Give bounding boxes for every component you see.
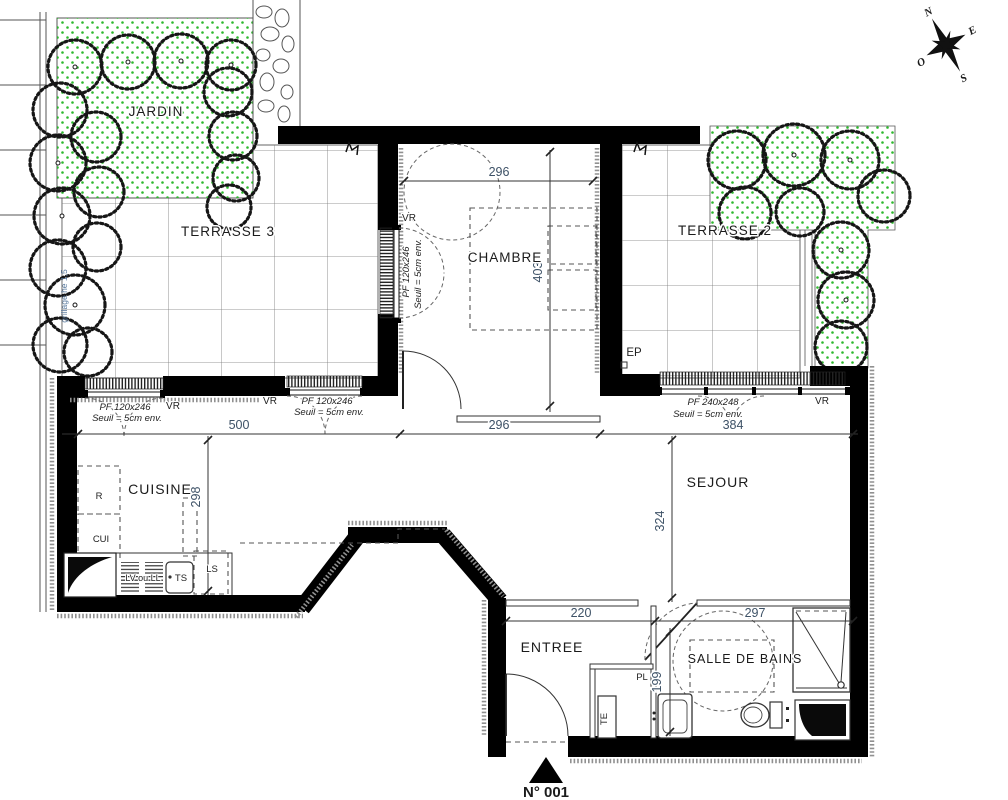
window1-sill: Seuil = 5cm env. [92,413,162,424]
label-dishwasher: LV ou LL [125,573,160,583]
dim-sejour-front: 384 [723,418,744,432]
partitions-doors [403,351,850,742]
label-te: TE [599,713,610,725]
label-sejour: SEJOUR [687,474,750,490]
gravel-strip [253,0,300,128]
window3-sill: Seuil = 5cm env. [673,409,743,420]
label-cooker: CUI [93,534,109,545]
window2-sill: Seuil = 5cm env. [294,407,364,418]
label-terrasse2: TERRASSE 2 [678,223,772,238]
compass-rose: N S E O [896,0,997,100]
dim-sejour-depth: 324 [653,511,667,532]
dim-kitchen-front: 500 [229,418,250,432]
window1-label: PF 120x246 [99,402,151,413]
label-chambre: CHAMBRE [468,250,543,265]
window3-label: PF 240x248 [687,397,739,408]
compass-west: O [915,55,928,69]
dim-bath-depth: 199 [650,672,664,693]
label-ls: LS [206,564,218,575]
window3-vr: VR [815,396,829,407]
label-terrasse3: TERRASSE 3 [181,224,275,239]
label-cuisine: CUISINE [128,481,192,497]
compass-east: E [966,24,979,39]
dim-entree-width: 220 [571,606,592,620]
fence-note: grillage he 1,5 [59,269,69,323]
label-closet-pl: PL [636,672,648,683]
entrance-triangle-icon [529,757,563,783]
chambre-window-sill: Seuil = 5cm env. [413,239,424,309]
chambre-window-label: PF 120x246 [401,246,412,298]
window2-vr: VR [263,396,277,407]
window1-vr: VR [166,401,180,412]
chambre-window-vr: VR [402,213,416,224]
label-jardin: JARDIN [129,104,184,119]
entrance-marker: N° 001 [523,757,569,800]
label-fridge: R [96,491,103,502]
property-boundary-lines [0,12,46,612]
dim-hall-front: 296 [489,418,510,432]
compass-north: N [921,5,935,20]
dim-chambre-width: 296 [489,165,510,179]
label-ep: EP [626,347,642,359]
window2-label: PF 120x246 [301,396,353,407]
label-entree: ENTREE [521,639,584,655]
floor-plan-svg: 500 296 384 296 403 298 324 220 297 199 … [0,0,1008,800]
floor-plan-page: 500 296 384 296 403 298 324 220 297 199 … [0,0,1008,800]
dim-bath-width: 297 [745,606,766,620]
compass-south: S [958,72,969,85]
label-salle-de-bains: SALLE DE BAINS [688,652,803,666]
unit-number: N° 001 [523,784,569,800]
label-sink: TS [175,573,187,584]
